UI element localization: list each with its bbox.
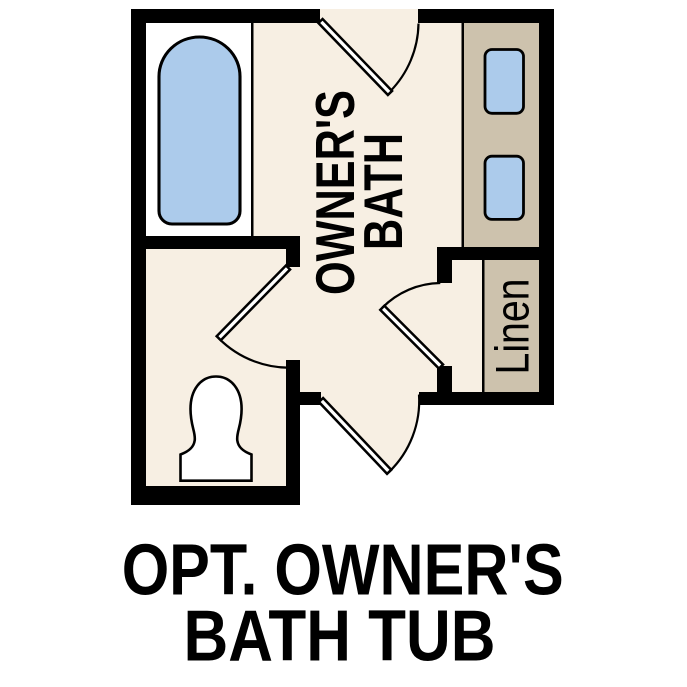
svg-text:BATH TUB: BATH TUB xyxy=(184,596,496,677)
svg-text:Linen: Linen xyxy=(486,279,539,375)
svg-text:BATH: BATH xyxy=(352,133,414,250)
